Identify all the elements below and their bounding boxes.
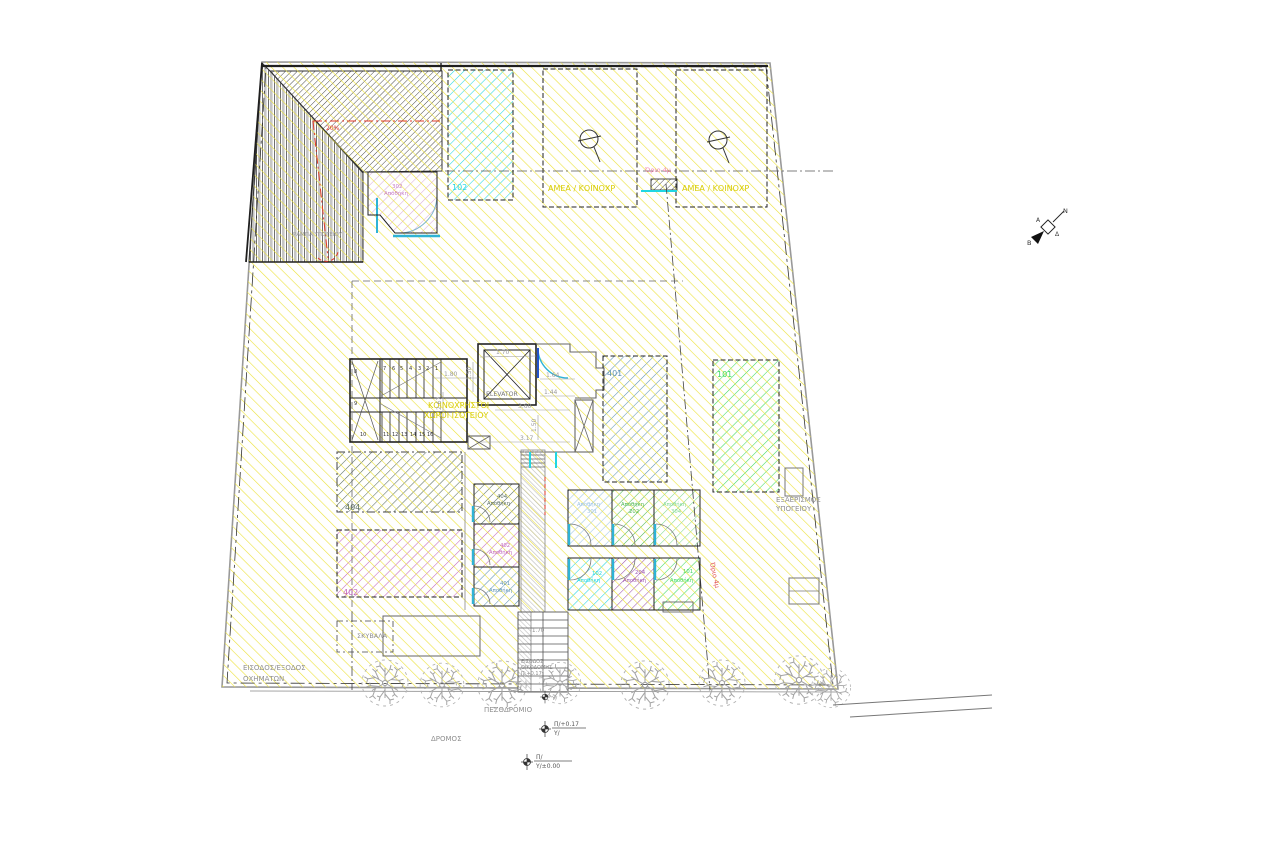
room-102-label: 102 xyxy=(452,183,467,192)
storage-label: 301 xyxy=(587,509,597,515)
garbage-label: ΣΚΥΒΑΛΑ xyxy=(357,632,388,640)
ramp-label: ΡΑΜΠΑ ΥΠΟΓΕΙΟΥ xyxy=(293,232,343,238)
stair-number: 12 xyxy=(392,432,398,438)
dimension-label: 1.50 xyxy=(466,366,473,380)
storage-label: Αποθήκη xyxy=(623,577,646,584)
stair-number: 4 xyxy=(409,366,412,372)
stair-number: 5 xyxy=(400,366,403,372)
ramp-slope-label: 20% xyxy=(326,125,340,132)
stair-number: 13 xyxy=(401,432,407,438)
storage-label: Αποθήκη xyxy=(577,501,600,508)
storage-label: 102 xyxy=(592,571,602,577)
stair-number: 16 xyxy=(427,432,433,438)
dimension-label: 3.60 xyxy=(518,403,532,410)
level-label: Υ/ xyxy=(551,696,557,702)
dimension-label: 1.70 xyxy=(496,349,510,356)
road-label: ΔΡΟΜΟΣ xyxy=(431,735,462,743)
room-402-label: 402 xyxy=(343,588,358,597)
storage-label: 202 xyxy=(629,509,639,515)
storage-label: 304 xyxy=(671,509,682,515)
stair-number: 8 xyxy=(354,369,357,375)
storage-label: 401 xyxy=(500,581,510,587)
vent-label-line1: ΕΞΑΕΡΙΣΜΟΣ xyxy=(776,496,821,504)
dimension-label: 1.64 xyxy=(546,372,560,379)
amea-left-label: ΑΜΕΑ / ΚΟΙΝΟΧΡ xyxy=(548,184,615,193)
floor-plan-svg: Ν Α Δ Β Υ/ Π/+0.17 Υ/ Π/ Υ/±0.00 ΡΑΜΠΑ Υ… xyxy=(0,0,1275,847)
storage-label: 402 xyxy=(500,543,510,549)
sidewalk-label: ΠΕΖΟΔΡΟΜΙΟ xyxy=(484,706,533,714)
stair-number: 15 xyxy=(419,432,425,438)
compass-letter-b: Β xyxy=(1027,239,1031,247)
storage-label: 404 xyxy=(497,494,508,500)
level-label: Υ/ xyxy=(553,730,561,737)
compass-letter-n: Ν xyxy=(1063,207,1068,215)
room-302-num: 302 xyxy=(392,184,403,190)
stair-number: 1 xyxy=(435,366,438,372)
storage-label: 101 xyxy=(683,569,693,575)
storage-label: Αποθήκη xyxy=(487,500,510,507)
stair-number: 9 xyxy=(354,401,357,407)
level-label: Π/ xyxy=(536,754,544,761)
compass-letter-d: Δ xyxy=(1055,231,1060,238)
stair-number: 7 xyxy=(383,366,386,372)
amea-right-label: ΑΜΕΑ / ΚΟΙΝΟΧΡ xyxy=(682,184,749,193)
common-areas-line2: ΧΩΡΟΙ ΙΣΟΓΕΙΟΥ xyxy=(424,411,488,420)
storage-label: 204 xyxy=(635,570,646,576)
storage-label: Αποθήκη xyxy=(621,501,644,508)
room-404-label: 404 xyxy=(345,503,360,512)
storage-label: Αποθήκη xyxy=(663,501,686,508)
room-101-label: 101 xyxy=(717,370,732,379)
stair-number: 14 xyxy=(410,432,416,438)
vent-label-line2: ΥΠΟΓΕΙΟΥ xyxy=(775,505,812,513)
storage-label: Αποθήκη xyxy=(670,577,693,584)
walkway-dim: 1.70 xyxy=(532,628,545,634)
orio-top-label: Όριο 4μ xyxy=(644,166,671,174)
dimension-label: 1.44 xyxy=(544,389,558,396)
room-401-label: 401 xyxy=(607,369,622,378)
stair-number: 10 xyxy=(360,432,366,438)
site-plan-canvas: Ν Α Δ Β Υ/ Π/+0.17 Υ/ Π/ Υ/±0.00 ΡΑΜΠΑ Υ… xyxy=(0,0,1275,847)
entrance-label-line3: Π:+0.17 xyxy=(521,671,542,677)
stair-number: 6 xyxy=(392,366,395,372)
storage-label: Αποθήκη xyxy=(489,549,512,556)
dimension-label: 1.80 xyxy=(444,371,458,378)
storage-label: Αποθήκη xyxy=(577,577,600,584)
stair-number: 11 xyxy=(383,432,389,438)
level-label: Π/+0.17 xyxy=(554,721,579,728)
vehicle-access-line2: ΟΧΗΜΑΤΩΝ xyxy=(243,675,284,683)
room-302-name: Αποθήκη xyxy=(384,190,409,197)
road-edge-lines xyxy=(833,695,992,717)
compass-rose: Ν Α Δ Β xyxy=(1027,207,1068,247)
compass-letter-a: Α xyxy=(1036,217,1041,224)
elevator-label: ELEVATOR xyxy=(486,391,519,398)
vehicle-access-line1: ΕΙΣΟΔΟΣ/ΕΞΟΔΟΣ xyxy=(243,664,306,672)
dimension-label: 2.67 xyxy=(436,396,443,410)
stair-number: 3 xyxy=(418,366,421,372)
dimension-label: 1.50 xyxy=(531,418,538,432)
storage-label: Αποθήκη xyxy=(489,587,512,594)
level-label: Υ/±0.00 xyxy=(535,763,560,770)
dimension-label: 3.17 xyxy=(520,435,534,442)
stair-number: 2 xyxy=(426,366,429,372)
